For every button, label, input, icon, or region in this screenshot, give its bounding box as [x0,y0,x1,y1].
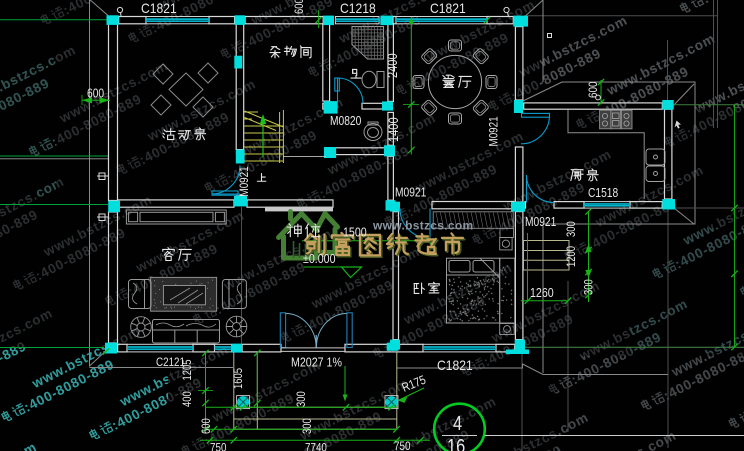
svg-text:M2027 1%: M2027 1% [291,354,342,369]
svg-text:4: 4 [453,411,462,434]
svg-text:M0921: M0921 [488,116,501,146]
svg-text:400: 400 [181,391,194,407]
svg-text:1200: 1200 [565,246,578,267]
svg-text:16: 16 [447,434,465,451]
svg-text:M0921: M0921 [525,216,556,229]
svg-text:600: 600 [200,418,213,434]
svg-text:C1518: C1518 [588,187,618,200]
svg-text:C1218: C1218 [340,0,376,16]
svg-text:600: 600 [293,0,306,14]
svg-text:1500: 1500 [343,224,367,239]
svg-text:±0.000: ±0.000 [303,251,336,266]
svg-text:300: 300 [583,279,596,295]
svg-text:750: 750 [394,440,410,451]
svg-text:7740: 7740 [305,442,327,451]
svg-text:M0820: M0820 [330,115,361,128]
svg-text:750: 750 [210,442,226,451]
svg-text:C1821: C1821 [437,357,473,373]
svg-text:600: 600 [87,88,104,101]
svg-text:2400: 2400 [385,53,400,78]
svg-text:1260: 1260 [530,285,554,300]
svg-text:C1821: C1821 [141,0,177,16]
svg-text:C1821: C1821 [430,0,466,16]
svg-text:300: 300 [295,391,308,407]
svg-text:M0921: M0921 [395,187,426,200]
svg-text:M0921: M0921 [238,166,251,196]
svg-text:www.bstzcs.com: www.bstzcs.com [372,219,473,233]
svg-text:300: 300 [565,221,578,237]
svg-text:1400: 1400 [386,117,401,142]
svg-text:1205: 1205 [181,359,194,380]
svg-text:1605: 1605 [232,368,245,389]
svg-text:300: 300 [301,418,314,434]
